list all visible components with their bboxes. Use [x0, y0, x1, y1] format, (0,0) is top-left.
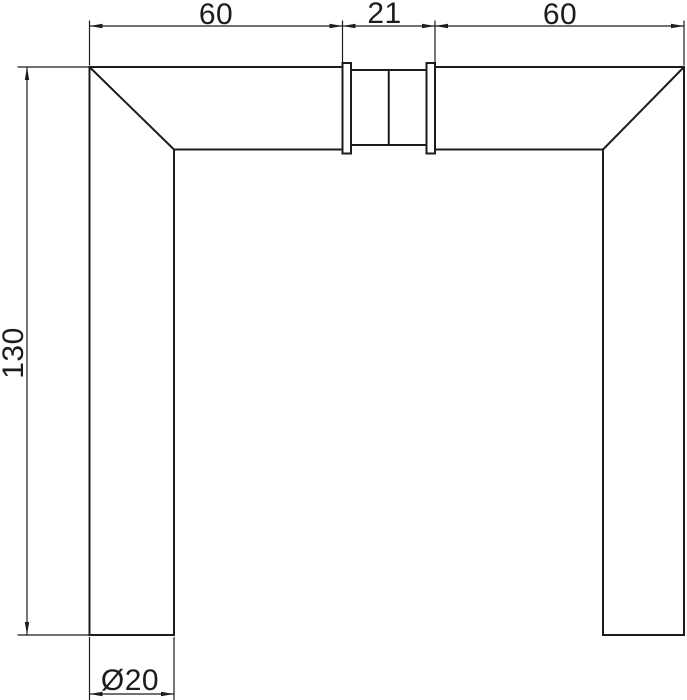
arrow-diameter-right	[161, 692, 174, 696]
technical-drawing-page: 60 21 60 130 Ø20	[0, 0, 687, 700]
arrow-top-right-out	[671, 24, 684, 28]
dim-label-height-130: 130	[0, 327, 30, 379]
dimension-arrowheads	[25, 24, 684, 696]
handle-left-outline	[90, 67, 343, 635]
arrow-height-bottom	[25, 622, 29, 635]
handle-right-neck-diagonal	[603, 67, 684, 150]
dim-label-top-right-60: 60	[543, 0, 577, 31]
arrow-21-left	[343, 24, 356, 28]
handle-left-neck-diagonal	[90, 67, 175, 150]
spindle-flange-right	[427, 63, 436, 154]
arrow-21-right	[422, 24, 435, 28]
dim-label-top-left-60: 60	[199, 0, 233, 31]
dimension-labels: 60 21 60 130 Ø20	[0, 0, 577, 697]
arrow-60L-right	[330, 24, 343, 28]
handle-right-outline	[435, 67, 684, 635]
dim-label-diameter-20: Ø20	[101, 664, 159, 697]
arrow-top-left-out	[90, 24, 103, 28]
arrow-60R-left	[435, 24, 448, 28]
dim-label-spindle-21: 21	[367, 0, 401, 30]
spindle-flange-left	[343, 63, 352, 154]
technical-drawing-canvas: 60 21 60 130 Ø20	[0, 0, 687, 700]
object-lines	[90, 63, 685, 635]
arrow-height-top	[25, 67, 29, 80]
